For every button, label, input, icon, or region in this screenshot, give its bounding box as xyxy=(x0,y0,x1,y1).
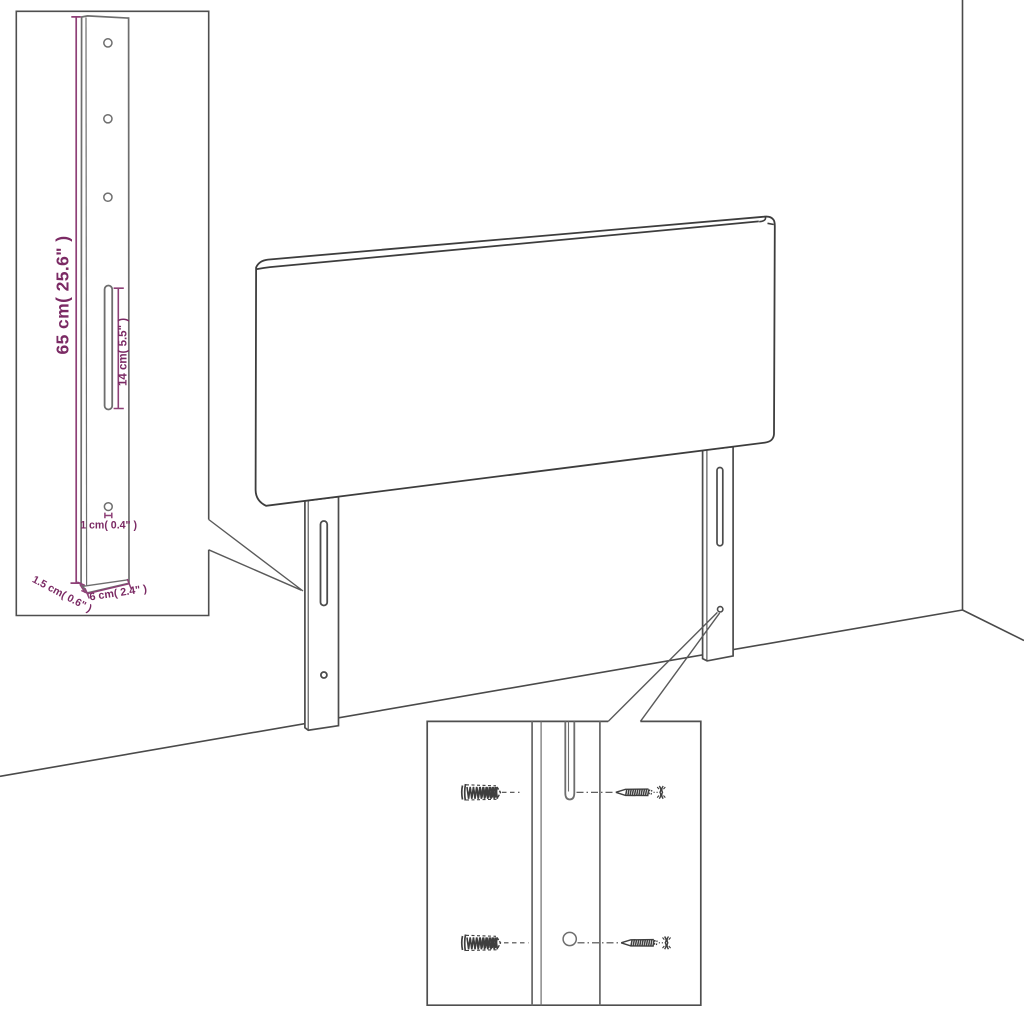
svg-text:1 cm( 0.4" ): 1 cm( 0.4" ) xyxy=(80,520,137,532)
svg-text:14 cm( 5.5" ): 14 cm( 5.5" ) xyxy=(118,318,130,386)
svg-text:65 cm( 25.6" ): 65 cm( 25.6" ) xyxy=(52,236,72,355)
